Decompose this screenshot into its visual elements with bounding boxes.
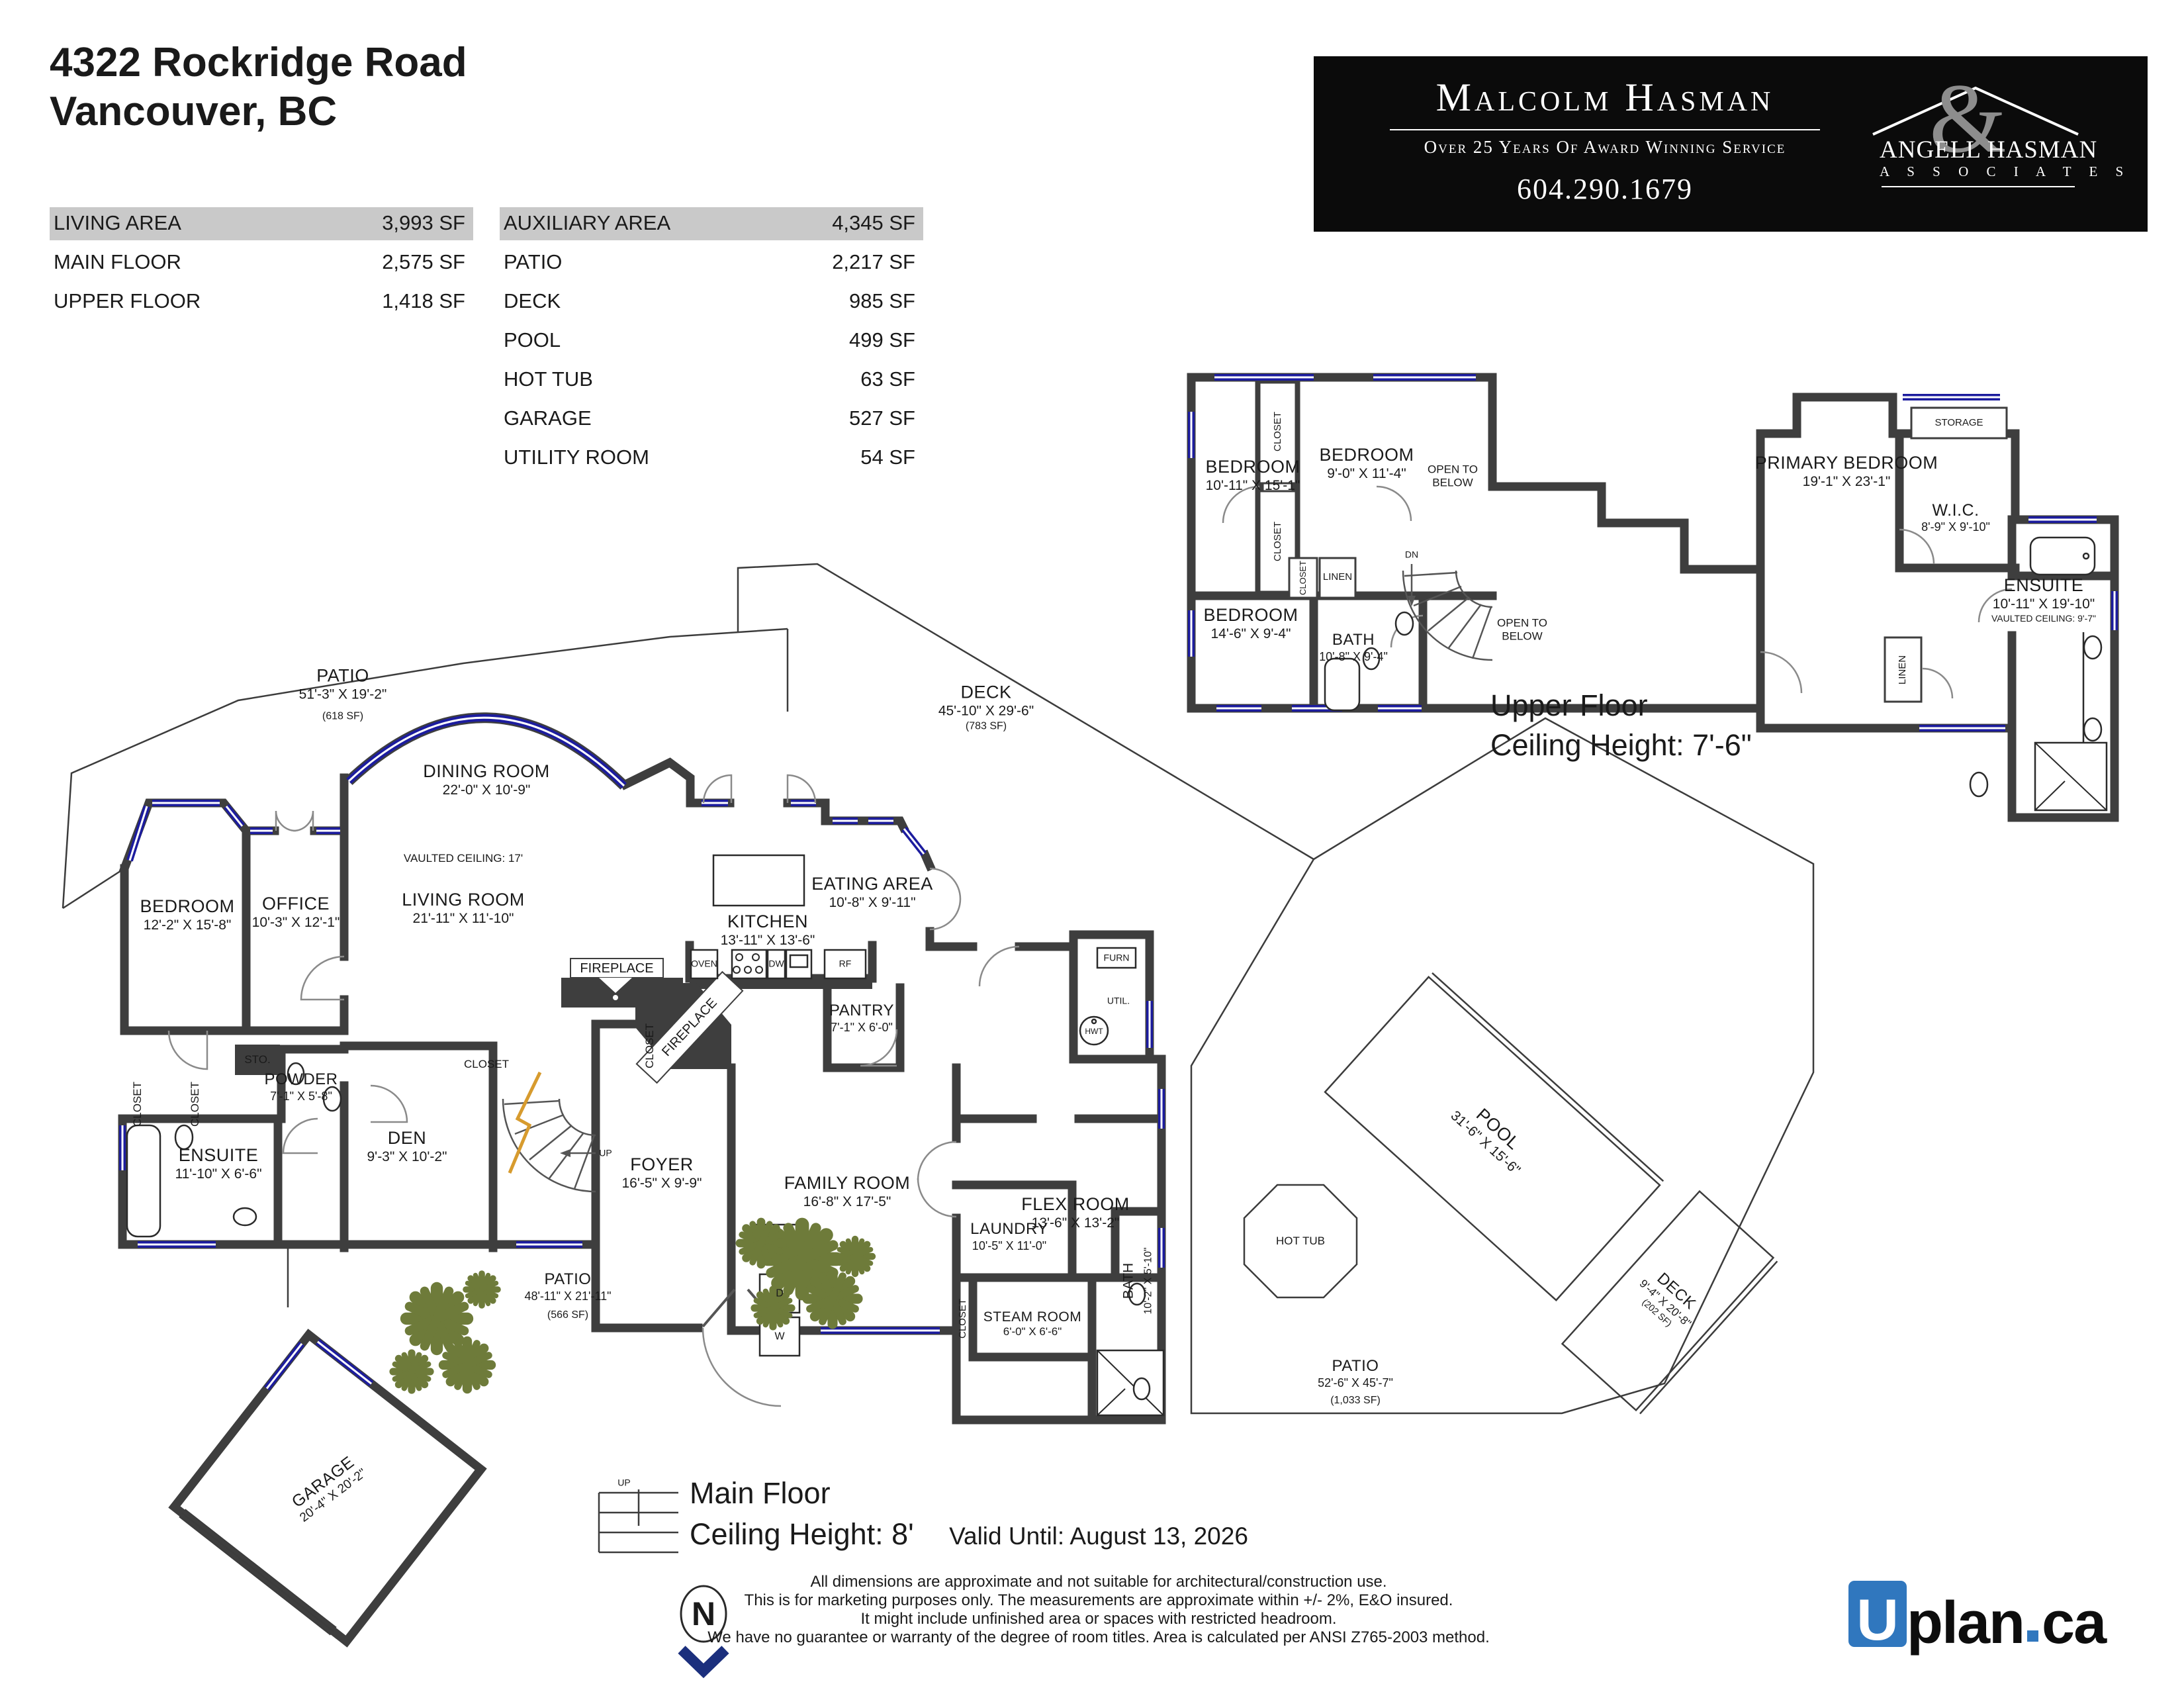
- uplan-logo: U plan ca: [1848, 1581, 2105, 1647]
- row-label: DECK: [504, 289, 561, 314]
- room-label-foyer: FOYER 16'-5" X 9'-9": [622, 1154, 702, 1192]
- washer-label: W: [774, 1330, 784, 1342]
- address-line1: 4322 Rockridge Road: [50, 38, 467, 87]
- room-label-bedroom2: BEDROOM 10'-11" X 15'-1": [1205, 456, 1300, 494]
- room-label-living: LIVING ROOM 21'-11" X 11'-10": [402, 889, 525, 927]
- row-label: UPPER FLOOR: [54, 289, 201, 314]
- closet-label: CLOSET: [1272, 522, 1284, 561]
- row-label: PATIO: [504, 250, 562, 275]
- room-label-bedroom-main: BEDROOM 12'-2" X 15'-8": [140, 896, 234, 934]
- address-line2: Vancouver, BC: [50, 87, 467, 136]
- upper-floor-ceiling: Ceiling Height: 7'-6": [1490, 728, 1752, 763]
- closet-label: CLOSET: [189, 1082, 202, 1127]
- closet-label: CLOSET: [643, 1023, 657, 1068]
- open-to-below-label: OPEN TO BELOW: [1428, 463, 1478, 491]
- oven-label: OVEN: [691, 959, 717, 970]
- closet-label: CLOSET: [464, 1058, 509, 1071]
- room-label-ensuite-upper: ENSUITE 10'-11" X 19'-10" VAULTED CEILIN…: [1991, 575, 2096, 624]
- table-row: GARAGE 527 SF: [500, 402, 923, 436]
- room-label-hot-tub: HOT TUB: [1276, 1235, 1325, 1248]
- auxiliary-area-table: AUXILIARY AREA 4,345 SF PATIO 2,217 SF D…: [500, 207, 923, 481]
- room-label-family: FAMILY ROOM 16'-8" X 17'-5": [784, 1172, 911, 1211]
- room-label-bedroom3: BEDROOM 9'-0" X 11'-4": [1319, 444, 1414, 483]
- living-header-label: LIVING AREA: [54, 211, 181, 236]
- partner-subname: A S S O C I A T E S: [1880, 164, 2078, 180]
- room-label-pool-patio: PATIO 52'-6" X 45'-7" (1,033 SF): [1318, 1357, 1393, 1407]
- uplan-dot: [2027, 1630, 2038, 1642]
- row-label: HOT TUB: [504, 367, 593, 393]
- row-value: 2,217 SF: [832, 250, 915, 275]
- uplan-plan-text: plan: [1907, 1599, 2024, 1647]
- floorplan-sheet: 4322 Rockridge Road Vancouver, BC LIVING…: [0, 0, 2184, 1688]
- uplan-u-icon: U: [1848, 1581, 1907, 1647]
- aux-area-header: AUXILIARY AREA 4,345 SF: [500, 207, 923, 240]
- aux-header-value: 4,345 SF: [832, 211, 915, 236]
- table-row: UTILITY ROOM 54 SF: [500, 442, 923, 475]
- utility-label: UTIL.: [1107, 996, 1130, 1007]
- room-label-patio-rear: PATIO 48'-11" X 21'-11" (566 SF): [524, 1270, 611, 1322]
- living-area-table: LIVING AREA 3,993 SF MAIN FLOOR 2,575 SF…: [50, 207, 473, 324]
- room-label-powder: POWDER 7'-1" X 5'-8": [265, 1070, 338, 1103]
- disclaimer-line: All dimensions are approximate and not s…: [668, 1573, 1529, 1591]
- stairs-upper: [1403, 564, 1492, 660]
- table-row: PATIO 2,217 SF: [500, 246, 923, 279]
- disclaimer-line: We have no guarantee or warranty of the …: [668, 1628, 1529, 1647]
- upper-floor-title: Upper Floor: [1490, 688, 1648, 723]
- room-label-den: DEN 9'-3" X 10'-2": [367, 1127, 447, 1166]
- footer: Valid Until: August 13, 2026 All dimensi…: [668, 1523, 1529, 1647]
- room-label-kitchen: KITCHEN 13'-11" X 13'-6": [721, 911, 815, 949]
- room-label-deck: DECK 45'-10" X 29'-6" (783 SF): [938, 682, 1034, 733]
- room-label-steam: STEAM ROOM 6'-0" X 6'-6": [983, 1309, 1082, 1339]
- partner-name: ANGELL HASMAN: [1880, 136, 2078, 164]
- closet-label: CLOSET: [1298, 561, 1308, 595]
- row-label: GARAGE: [504, 406, 592, 432]
- row-value: 1,418 SF: [382, 289, 465, 314]
- row-value: 54 SF: [860, 445, 915, 471]
- room-label-pantry: PANTRY 7'-1" X 6'-0": [829, 1002, 894, 1035]
- room-label-office: OFFICE 10'-3" X 12'-1": [252, 893, 340, 931]
- fireplace-label: FIREPLACE: [580, 961, 653, 976]
- room-label-ensuite-main: ENSUITE 11'-10" X 6'-6": [175, 1145, 261, 1183]
- agent-tagline: Over 25 Years Of Award Winning Service: [1314, 137, 1896, 158]
- dishwasher-label: DW: [768, 959, 784, 970]
- dn-label: DN: [1405, 549, 1418, 561]
- storage-short-label: STO.: [244, 1053, 270, 1066]
- row-label: UTILITY ROOM: [504, 445, 649, 471]
- room-label-bedroom4: BEDROOM 14'-6" X 9'-4": [1203, 604, 1298, 643]
- up-label: UP: [599, 1148, 612, 1159]
- table-row: DECK 985 SF: [500, 285, 923, 318]
- up-label: UP: [617, 1477, 630, 1489]
- disclaimer-line: This is for marketing purposes only. The…: [668, 1591, 1529, 1610]
- room-label-bath-main: BATH: [1120, 1263, 1136, 1299]
- row-value: 985 SF: [849, 289, 915, 314]
- open-to-below-label: OPEN TO BELOW: [1497, 617, 1547, 644]
- uplan-ca-text: ca: [2042, 1599, 2105, 1647]
- agent-name: Malcolm Hasman: [1314, 75, 1896, 120]
- agent-banner: Malcolm Hasman Over 25 Years Of Award Wi…: [1314, 56, 2148, 232]
- valid-until: Valid Until: August 13, 2026: [668, 1523, 1529, 1550]
- row-value: 2,575 SF: [382, 250, 465, 275]
- room-label-primary: PRIMARY BEDROOM 19'-1" X 23'-1": [1755, 452, 1938, 491]
- furnace-label: FURN: [1104, 953, 1130, 964]
- stairs-main: [503, 1072, 596, 1192]
- room-label-patio-front: PATIO 51'-3" X 19'-2" (618 SF): [299, 665, 387, 723]
- hot-water-tank-label: HWT: [1085, 1027, 1103, 1036]
- room-label-laundry: LAUNDRY 10'-5" X 11'-0": [970, 1220, 1048, 1253]
- vaulted-ceiling-note: VAULTED CEILING: 17': [404, 852, 523, 865]
- partner-rule: [1882, 186, 2075, 187]
- row-label: MAIN FLOOR: [54, 250, 181, 275]
- banner-rule: [1390, 129, 1820, 130]
- main-floor-title: Main Floor: [690, 1476, 831, 1511]
- room-label-dining: DINING ROOM 22'-0" X 10'-9": [423, 761, 550, 799]
- closet-label: CLOSET: [957, 1299, 969, 1338]
- living-area-header: LIVING AREA 3,993 SF: [50, 207, 473, 240]
- door-arcs: [169, 487, 2012, 1406]
- table-row: HOT TUB 63 SF: [500, 363, 923, 397]
- closet-label: CLOSET: [1272, 412, 1284, 451]
- room-label-bath-upper: BATH 10'-8" X 9'-4": [1319, 631, 1388, 664]
- agent-phone: 604.290.1679: [1314, 172, 1896, 206]
- living-header-value: 3,993 SF: [382, 211, 465, 236]
- fridge-label: RF: [839, 959, 852, 970]
- aux-header-label: AUXILIARY AREA: [504, 211, 670, 236]
- table-row: MAIN FLOOR 2,575 SF: [50, 246, 473, 279]
- row-value: 499 SF: [849, 328, 915, 353]
- row-value: 527 SF: [849, 406, 915, 432]
- room-dims-bath-main: 10'-2" X 5'-10": [1142, 1247, 1154, 1314]
- disclaimer-line: It might include unfinished area or spac…: [668, 1610, 1529, 1628]
- dryer-label: D: [776, 1287, 784, 1299]
- storage-label: STORAGE: [1934, 417, 1983, 429]
- row-value: 63 SF: [860, 367, 915, 393]
- table-row: POOL 499 SF: [500, 324, 923, 357]
- table-row: UPPER FLOOR 1,418 SF: [50, 285, 473, 318]
- room-label-eating: EATING AREA 10'-8" X 9'-11": [811, 873, 933, 912]
- room-label-wic: W.I.C. 8'-9" X 9'-10": [1921, 500, 1990, 535]
- row-label: POOL: [504, 328, 561, 353]
- closet-label: CLOSET: [131, 1082, 144, 1127]
- linen-label: LINEN: [1323, 571, 1352, 583]
- property-address: 4322 Rockridge Road Vancouver, BC: [50, 38, 467, 137]
- linen-label: LINEN: [1897, 655, 1909, 684]
